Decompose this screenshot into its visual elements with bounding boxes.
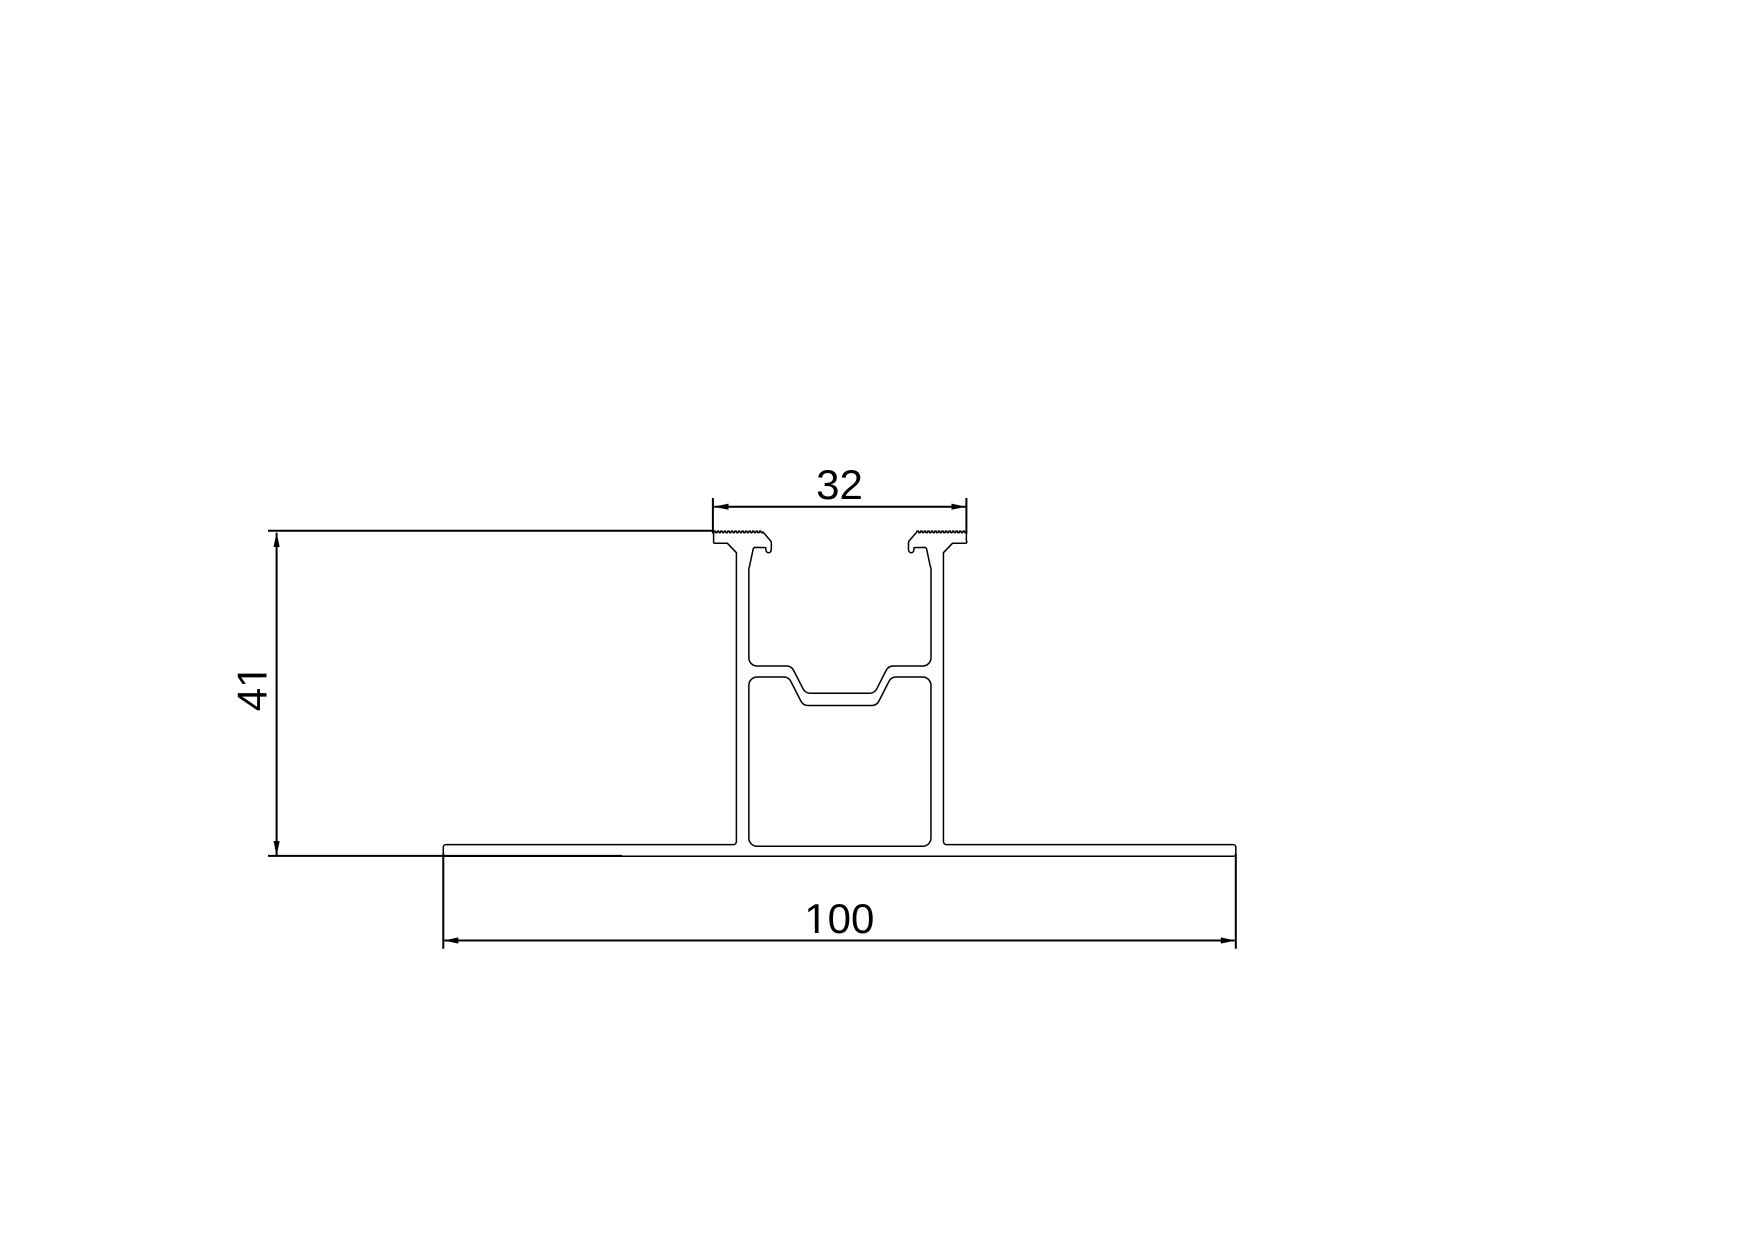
svg-text:100: 100	[804, 895, 874, 942]
svg-text:32: 32	[816, 461, 863, 508]
svg-text:41: 41	[228, 665, 275, 712]
